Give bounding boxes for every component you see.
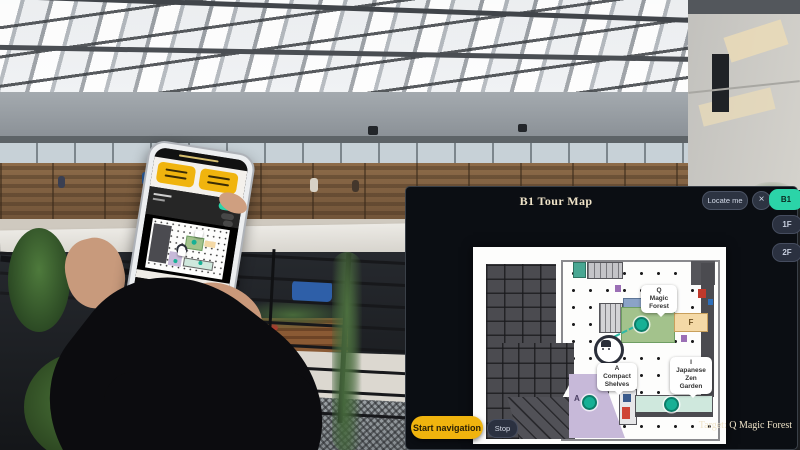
label-line: Forest [649, 303, 669, 310]
label-zen-garden[interactable]: I Japanese Zen Garden [670, 357, 712, 394]
button-text-blur [208, 175, 230, 180]
button-text-blur [165, 168, 187, 173]
floorplan-red-element [622, 407, 630, 419]
mini-label [177, 248, 186, 256]
spotlight [368, 126, 378, 135]
button-text-blur [207, 181, 229, 186]
robot-eye [608, 348, 610, 350]
robot-head [601, 340, 611, 347]
floor-button-2f[interactable]: 2F [772, 243, 800, 262]
label-line: Shelves [605, 381, 630, 388]
label-compact-shelves[interactable]: A Compact Shelves [597, 363, 637, 391]
button-text-blur [165, 174, 187, 179]
person [58, 176, 65, 188]
floorplan-red-room [698, 289, 706, 298]
label-line: Compact [603, 373, 631, 380]
start-navigation-button[interactable]: Start navigation [411, 416, 483, 439]
floorplan-room [599, 303, 623, 333]
person [310, 178, 318, 192]
floorplan-top-room [573, 262, 586, 278]
phone-yellow-button[interactable] [198, 168, 239, 195]
phone-mini-floorplan [145, 218, 230, 280]
palm-plant [8, 228, 70, 332]
robot-eye [602, 348, 604, 350]
wall-top-shadow [688, 0, 800, 14]
hanging-vine-plant [332, 252, 362, 450]
floorplan-top-rooms [587, 262, 623, 279]
phone-small-button[interactable] [221, 213, 235, 221]
setting-text-blur [153, 198, 165, 202]
location-marker-icon[interactable] [634, 317, 649, 332]
label-line: I [690, 359, 692, 366]
railing-bar [230, 253, 430, 266]
floorplan-blue-element [623, 394, 631, 402]
mini-orange-area [204, 240, 216, 248]
label-line: Magic [650, 295, 668, 302]
wall-window [712, 54, 729, 112]
label-line: Garden [680, 383, 703, 390]
location-marker-icon[interactable] [664, 397, 679, 412]
robot-avatar-icon[interactable] [594, 335, 624, 365]
stop-button[interactable]: Stop [487, 419, 518, 438]
panel-title: B1 Tour Map [406, 194, 706, 209]
arm-sleeve [104, 372, 316, 450]
mini-label [194, 230, 203, 238]
screenshot-stage: B1 Tour Map Locate me × B1 1F 2F F [0, 0, 800, 450]
area-a-letter: A [574, 394, 580, 403]
target-status-text: Target: Q Magic Forest [699, 420, 792, 431]
floorplan-dark-wing-upper [486, 264, 556, 350]
floorplan-blue-marker [708, 299, 713, 305]
label-line: Q [656, 287, 661, 294]
floor-button-1f[interactable]: 1F [772, 215, 800, 234]
floorplan-wall [635, 412, 713, 417]
floorplan-map[interactable]: F A Q Magic Forest A C [473, 247, 726, 444]
area-f[interactable]: F [674, 313, 708, 332]
person [352, 180, 359, 192]
label-line: Japanese [676, 367, 706, 374]
setting-text-blur [154, 193, 172, 198]
floor-button-b1[interactable]: B1 [769, 189, 800, 210]
spotlight [518, 124, 527, 132]
floorplan-purple-marker [615, 285, 621, 292]
locate-me-button[interactable]: Locate me [702, 191, 748, 210]
label-line: A [615, 365, 620, 372]
tour-map-panel: B1 Tour Map Locate me × B1 1F 2F F [405, 186, 798, 450]
phone-yellow-button[interactable] [156, 161, 197, 188]
mezzanine-window-band [0, 143, 740, 165]
location-marker-icon[interactable] [582, 395, 597, 410]
floorplan-purple-marker [681, 335, 687, 342]
label-line: Zen [685, 375, 697, 382]
railing-bar [229, 275, 429, 288]
label-magic-forest[interactable]: Q Magic Forest [641, 285, 677, 313]
